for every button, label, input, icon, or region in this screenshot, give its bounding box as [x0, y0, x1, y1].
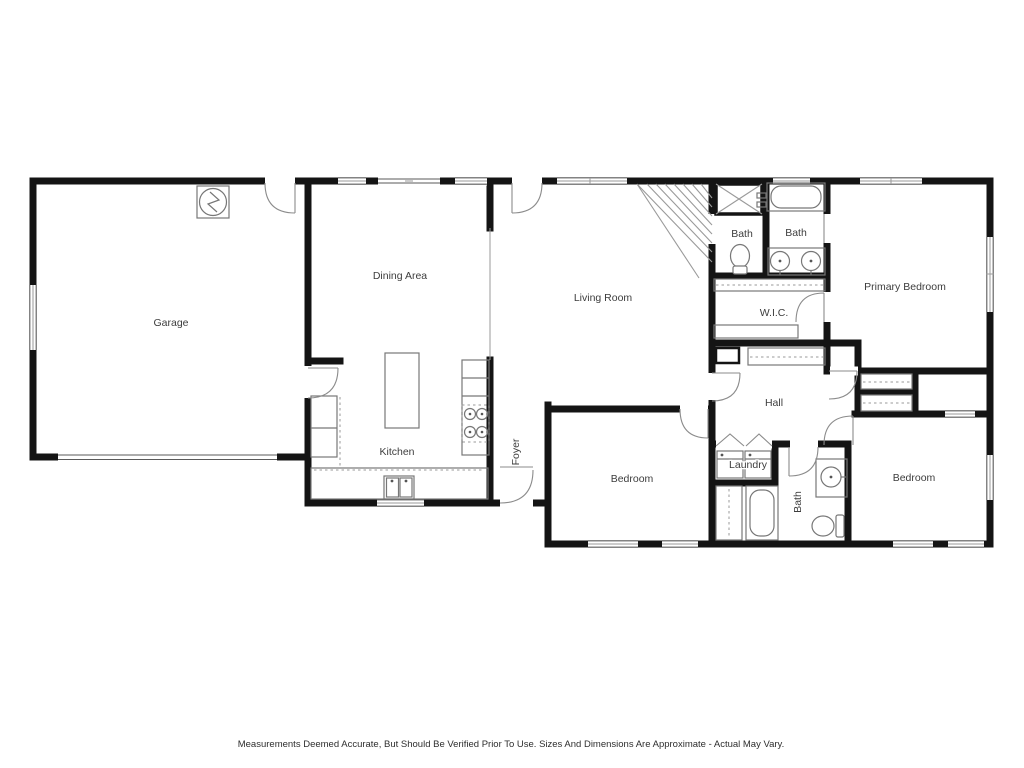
room-label-wic: W.I.C.	[760, 307, 789, 319]
window	[945, 410, 975, 419]
room-label-living-room: Living Room	[574, 292, 633, 304]
window	[29, 285, 38, 350]
shower	[716, 184, 766, 214]
window	[377, 499, 424, 508]
garage-entry-door	[265, 183, 295, 213]
floor-plan-page: Garage Dining Area Kitchen Living Room F…	[0, 0, 1024, 768]
room-label-bath-lower: Bath	[792, 491, 804, 513]
window	[986, 237, 995, 312]
room-label-hall: Hall	[765, 397, 783, 409]
linen-closet	[716, 486, 742, 540]
range	[462, 360, 489, 455]
window	[557, 177, 627, 186]
room-label-dining-area: Dining Area	[373, 270, 427, 282]
floor-plan-drawing: Garage Dining Area Kitchen Living Room F…	[0, 0, 1024, 768]
room-label-foyer: Foyer	[510, 438, 522, 465]
room-label-bath-upper-right: Bath	[785, 227, 807, 239]
refrigerator-counter	[311, 396, 484, 470]
living-room-rear-door	[512, 183, 542, 213]
window	[455, 177, 487, 186]
front-door	[500, 467, 533, 503]
window	[860, 177, 922, 186]
room-label-primary-bedroom: Primary Bedroom	[864, 281, 946, 293]
room-label-bedroom-right: Bedroom	[893, 472, 936, 484]
toilet	[812, 515, 844, 537]
window	[662, 540, 698, 549]
stairs	[637, 184, 712, 278]
garage-door	[58, 453, 277, 462]
room-label-bath-upper-left: Bath	[731, 228, 753, 240]
window	[893, 540, 933, 549]
window	[338, 177, 366, 186]
bathtub	[746, 486, 778, 540]
wic-door	[796, 293, 824, 322]
bathtub	[767, 183, 825, 211]
hall-closet	[716, 348, 825, 365]
water-heater-icon	[197, 186, 229, 218]
room-label-laundry: Laundry	[729, 459, 768, 471]
window	[378, 177, 440, 186]
room-label-kitchen: Kitchen	[379, 446, 414, 458]
window	[948, 540, 984, 549]
disclaimer-text: Measurements Deemed Accurate, But Should…	[238, 739, 785, 750]
window	[986, 455, 995, 500]
room-label-bedroom-middle: Bedroom	[611, 473, 654, 485]
kitchen-island	[385, 353, 419, 428]
room-label-garage: Garage	[153, 317, 188, 329]
double-sink-vanity	[768, 248, 825, 275]
bath-lower-door	[789, 447, 818, 476]
toilet	[731, 245, 750, 275]
window	[588, 540, 638, 549]
kitchen-sink	[384, 476, 414, 499]
sink-vanity	[816, 459, 847, 497]
window	[773, 177, 810, 186]
